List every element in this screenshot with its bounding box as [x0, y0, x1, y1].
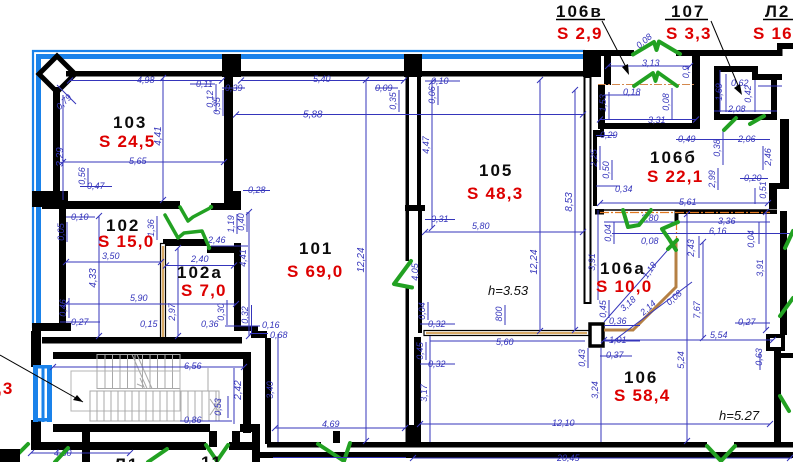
svg-text:2,42: 2,42 — [233, 380, 244, 401]
svg-text:105: 105 — [479, 161, 513, 180]
svg-text:Л1: Л1 — [114, 455, 139, 462]
svg-text:102a: 102a — [177, 263, 223, 282]
svg-text:4,33: 4,33 — [88, 268, 99, 288]
svg-text:0,04: 0,04 — [417, 302, 427, 320]
svg-text:S 10,0: S 10,0 — [596, 277, 652, 296]
svg-text:2,43: 2,43 — [686, 239, 696, 258]
svg-text:3,91: 3,91 — [587, 253, 597, 271]
svg-text:12,24: 12,24 — [356, 247, 367, 272]
svg-text:0,86: 0,86 — [184, 415, 202, 425]
svg-text:0,30: 0,30 — [216, 303, 226, 321]
svg-text:0,15: 0,15 — [140, 319, 159, 329]
svg-text:0,08: 0,08 — [661, 93, 671, 111]
svg-text:6,16: 6,16 — [709, 226, 727, 236]
svg-text:0,9: 0,9 — [681, 66, 691, 79]
svg-text:6,56: 6,56 — [184, 361, 202, 371]
svg-text:4,69: 4,69 — [322, 419, 340, 429]
svg-text:0,39: 0,39 — [225, 83, 243, 93]
svg-text:0,37: 0,37 — [606, 350, 625, 360]
svg-text:1,19: 1,19 — [226, 215, 236, 233]
svg-text:4,05: 4,05 — [410, 262, 420, 281]
svg-text:0,47: 0,47 — [87, 181, 106, 191]
svg-text:107: 107 — [671, 2, 705, 21]
svg-text:0,04: 0,04 — [603, 224, 613, 242]
svg-text:3,50: 3,50 — [102, 251, 120, 261]
svg-text:3,24: 3,24 — [590, 381, 600, 399]
svg-text:0,29: 0,29 — [600, 130, 618, 140]
svg-text:0,18: 0,18 — [623, 87, 641, 97]
svg-text:0,50: 0,50 — [601, 161, 611, 179]
svg-text:1,01: 1,01 — [609, 335, 627, 345]
svg-text:2,25: 2,25 — [589, 148, 599, 168]
svg-text:S 15,0: S 15,0 — [98, 232, 154, 251]
svg-text:S 3,3: S 3,3 — [666, 24, 712, 43]
svg-text:0,32: 0,32 — [428, 359, 446, 369]
svg-text:0,49: 0,49 — [678, 134, 696, 144]
svg-text:0,45: 0,45 — [598, 299, 608, 318]
svg-text:20,45: 20,45 — [556, 453, 581, 462]
svg-text:0,27: 0,27 — [738, 317, 757, 327]
svg-text:2,06: 2,06 — [737, 134, 756, 144]
svg-text:3,91: 3,91 — [755, 259, 765, 277]
svg-text:0,63: 0,63 — [754, 348, 764, 366]
svg-text:0,32: 0,32 — [428, 319, 446, 329]
svg-text:12,24: 12,24 — [529, 249, 540, 274]
svg-text:5,24: 5,24 — [676, 351, 686, 369]
svg-text:0,53: 0,53 — [213, 398, 223, 416]
svg-text:0,27: 0,27 — [71, 317, 90, 327]
svg-text:106в: 106в — [556, 2, 603, 21]
svg-text:h=3.53: h=3.53 — [488, 283, 529, 298]
svg-text:7,67: 7,67 — [692, 300, 702, 319]
svg-text:1,53: 1,53 — [598, 94, 608, 112]
svg-text:S 48,3: S 48,3 — [467, 184, 523, 203]
svg-text:3,31: 3,31 — [648, 115, 666, 125]
svg-text:103: 103 — [113, 113, 147, 132]
svg-text:0,06: 0,06 — [427, 86, 437, 104]
svg-text:2,99: 2,99 — [707, 170, 717, 189]
svg-text:S 24,5: S 24,5 — [99, 132, 155, 151]
svg-text:0,16: 0,16 — [262, 320, 280, 330]
svg-text:0,10: 0,10 — [431, 76, 449, 86]
svg-text:0,34: 0,34 — [615, 184, 633, 194]
svg-text:5,88: 5,88 — [303, 110, 323, 121]
svg-text:0,68: 0,68 — [270, 330, 288, 340]
svg-text:0,51: 0,51 — [758, 181, 768, 199]
svg-text:0,10: 0,10 — [71, 212, 89, 222]
svg-text:0,04: 0,04 — [746, 230, 756, 248]
svg-text:101: 101 — [299, 239, 333, 258]
svg-text:4,47: 4,47 — [421, 135, 431, 154]
svg-text:S 7,0: S 7,0 — [181, 281, 227, 300]
svg-text:0,38: 0,38 — [712, 139, 722, 157]
svg-text:3,13: 3,13 — [642, 58, 660, 68]
svg-text:S 16,: S 16, — [753, 24, 793, 43]
svg-text:0,32: 0,32 — [240, 306, 250, 324]
svg-text:5,80: 5,80 — [472, 221, 490, 231]
svg-text:0,36: 0,36 — [609, 316, 627, 326]
svg-text:0,11: 0,11 — [196, 79, 213, 89]
svg-text:2,46: 2,46 — [207, 235, 226, 245]
svg-text:0,09: 0,09 — [375, 83, 393, 93]
svg-text:5,65: 5,65 — [129, 156, 148, 166]
svg-text:0,31: 0,31 — [431, 214, 449, 224]
svg-text:S 69,0: S 69,0 — [287, 262, 343, 281]
svg-text:0,35: 0,35 — [212, 96, 222, 115]
svg-text:S 58,4: S 58,4 — [614, 386, 670, 405]
svg-text:106а: 106а — [600, 259, 646, 278]
svg-text:12,10: 12,10 — [552, 418, 575, 428]
svg-text:5,40: 5,40 — [313, 74, 331, 84]
svg-text:3,36: 3,36 — [718, 216, 736, 226]
svg-text:0,56: 0,56 — [77, 167, 87, 185]
svg-text:0,35: 0,35 — [388, 91, 398, 110]
svg-text:106: 106 — [624, 368, 658, 387]
svg-text:11: 11 — [201, 453, 223, 462]
svg-text:4,41: 4,41 — [238, 249, 248, 267]
svg-text:800: 800 — [494, 306, 504, 321]
svg-text:3,29: 3,29 — [55, 147, 66, 167]
svg-text:2,97: 2,97 — [167, 302, 177, 322]
svg-text:5,61: 5,61 — [679, 197, 697, 207]
svg-text:8,53: 8,53 — [564, 192, 575, 212]
svg-text:2,08: 2,08 — [727, 104, 746, 114]
svg-text:0,42: 0,42 — [743, 85, 753, 103]
svg-text:S 22,1: S 22,1 — [647, 167, 703, 186]
svg-text:3,40: 3,40 — [265, 381, 275, 399]
svg-text:2,46: 2,46 — [763, 148, 773, 167]
svg-text:5,54: 5,54 — [710, 330, 728, 340]
svg-text:Л2: Л2 — [765, 2, 790, 21]
svg-text:1,69: 1,69 — [714, 83, 724, 101]
svg-text:S 2,9: S 2,9 — [557, 24, 603, 43]
svg-text:0,45: 0,45 — [415, 341, 425, 360]
svg-text:0,43: 0,43 — [577, 349, 587, 367]
svg-text:5,60: 5,60 — [496, 337, 514, 347]
svg-text:0,28: 0,28 — [248, 185, 266, 195]
svg-text:3,17: 3,17 — [419, 383, 429, 402]
svg-text:0,40: 0,40 — [236, 213, 246, 231]
svg-text:h=5.27: h=5.27 — [719, 408, 760, 423]
svg-text:0,08: 0,08 — [641, 236, 659, 246]
svg-text:0,05: 0,05 — [56, 222, 66, 241]
svg-text:4,98: 4,98 — [137, 75, 155, 85]
svg-text:0,46: 0,46 — [58, 299, 68, 317]
svg-text:106б: 106б — [650, 148, 697, 167]
svg-text:5,90: 5,90 — [130, 293, 148, 303]
svg-text:,3: ,3 — [0, 379, 14, 398]
